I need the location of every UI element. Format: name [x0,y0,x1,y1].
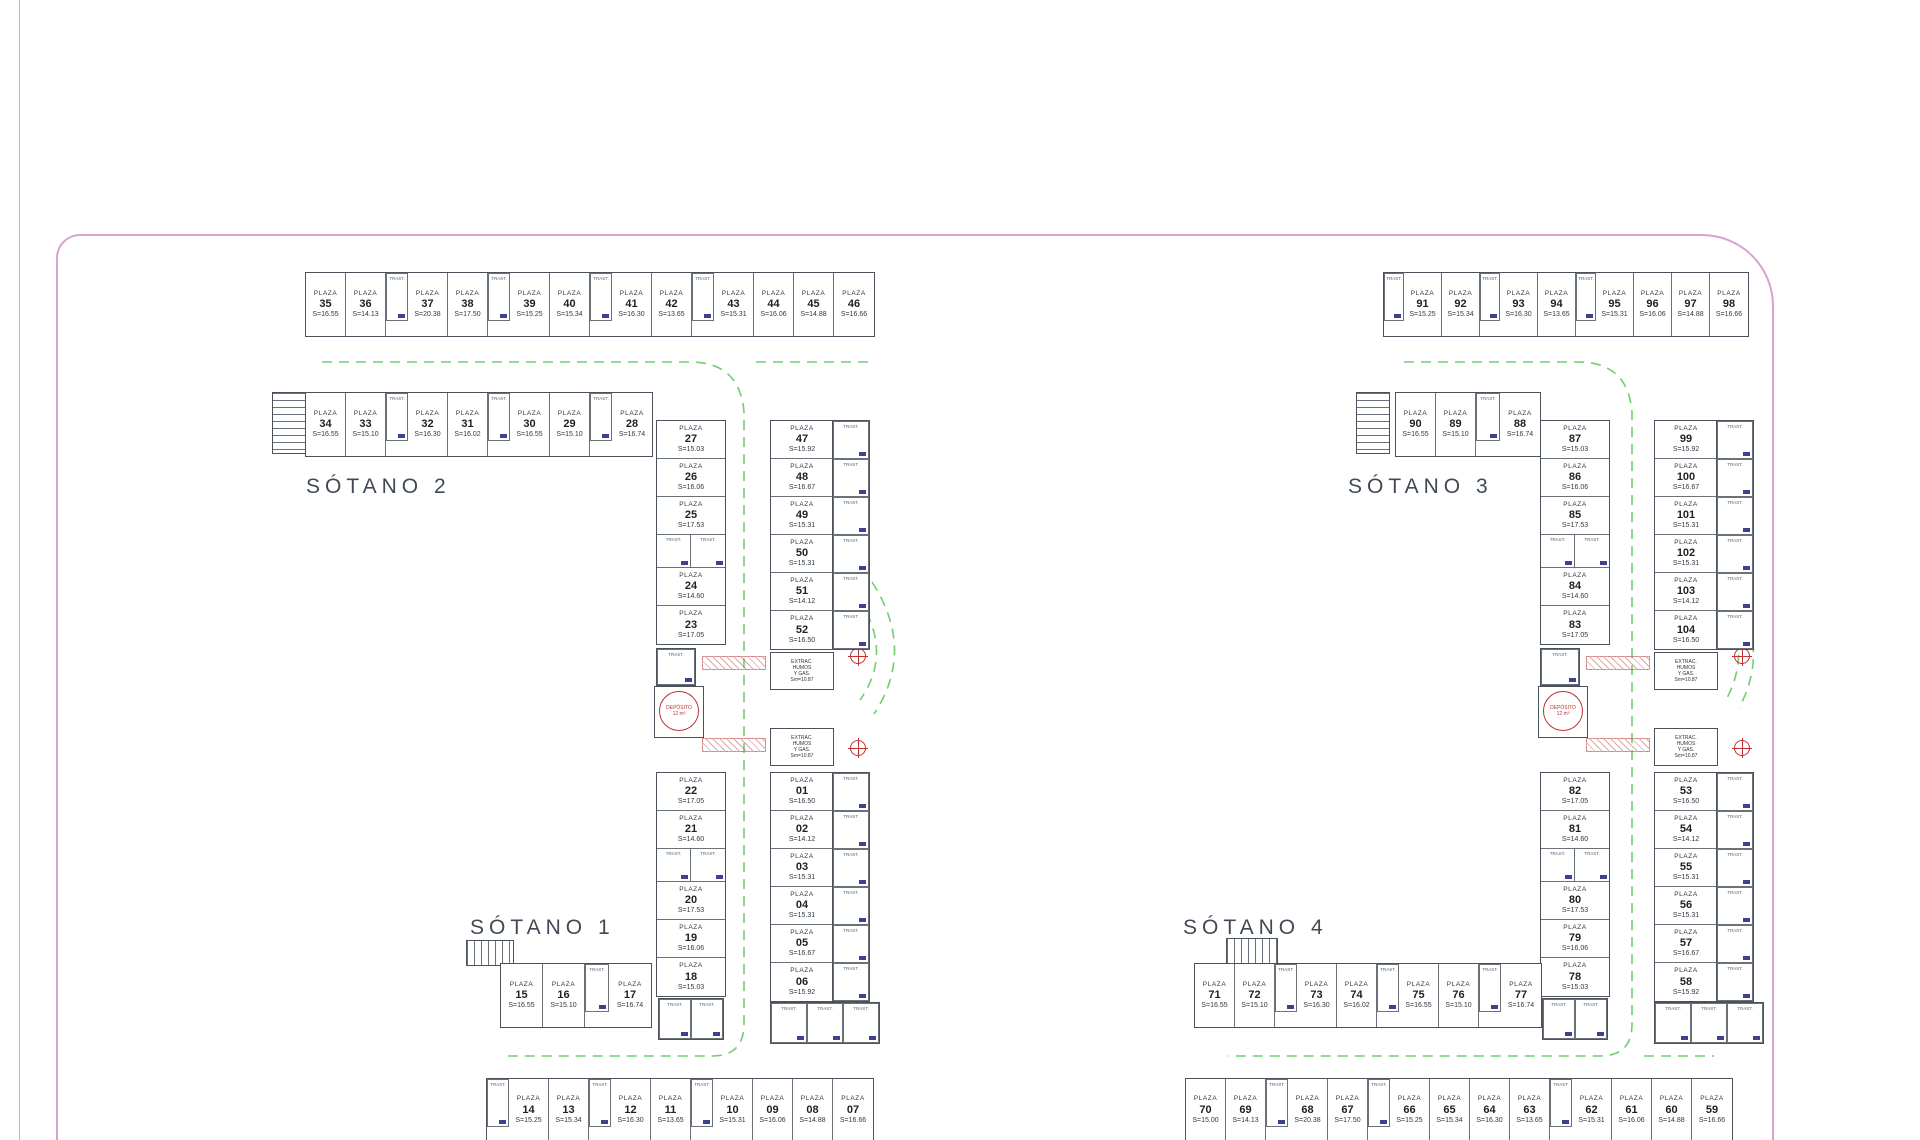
plaza-word: PLAZA [1674,426,1698,433]
trast-box: TRAST. [386,273,408,321]
parking-stall-47: PLAZA47S=15.92 [771,421,833,459]
plaza-number: 65 [1443,1104,1455,1116]
plaza-area: S=15.31 [789,874,815,881]
trast-box: TRAST. [1377,964,1399,1012]
plaza-number: 100 [1677,471,1695,483]
trast-box: TRAST. [1576,273,1596,321]
plaza-number: 63 [1523,1104,1535,1116]
plaza-area: S=16.30 [414,431,440,438]
plaza-word: PLAZA [790,426,814,433]
plaza-number: 15 [515,989,527,1001]
parking-stall-45: PLAZA45S=14.88 [794,273,834,336]
plaza-number: 58 [1680,976,1692,988]
plaza-word: PLAZA [1345,982,1369,989]
plaza-area: S=16.55 [516,431,542,438]
stall-group-s4-row-71-77: PLAZA71S=16.55PLAZA72S=15.10TRAST.PLAZA7… [1194,963,1542,1028]
plaza-number: 34 [319,418,331,430]
stall-group-s4-col-outer: PLAZA53S=16.50PLAZA54S=14.12PLAZA55S=15.… [1654,772,1718,1002]
trast-box: TRAST. [1717,573,1753,611]
parking-stall-21: PLAZA21S=14.60 [657,811,725,849]
plaza-number: 61 [1625,1104,1637,1116]
stall-group-s1-trast-under-inner: TRAST.TRAST. [658,998,724,1040]
plaza-area: S=14.88 [799,1117,825,1124]
sheet-edge-line [19,0,20,1140]
stall-group-s1-trast-under-outer: TRAST.TRAST.TRAST. [770,1002,880,1044]
parking-stall-76: PLAZA76S=15.10 [1439,964,1479,1027]
trast-box: TRAST. [833,773,869,811]
plaza-number: 60 [1665,1104,1677,1116]
plaza-number: 83 [1569,619,1581,631]
trast-box: TRAST. [833,497,869,535]
parking-stall-26: PLAZA26S=16.06 [657,459,725,497]
parking-stall-64: PLAZA64S=16.30 [1470,1079,1510,1140]
plaza-area: S=15.10 [550,1002,576,1009]
parking-stall-39: PLAZA39S=15.25 [510,273,550,336]
trast-box: TRAST. [833,573,869,611]
plaza-area: S=16.66 [1716,311,1742,318]
plaza-word: PLAZA [1674,502,1698,509]
plaza-area: S=15.03 [678,446,704,453]
extrac-line: Sm=10.87 [791,753,814,759]
plaza-word: PLAZA [456,291,480,298]
plaza-area: S=15.34 [1447,311,1473,318]
plaza-number: 80 [1569,894,1581,906]
plaza-number: 92 [1454,298,1466,310]
parking-stall-36: PLAZA36S=14.13 [346,273,386,336]
plaza-area: S=16.50 [789,637,815,644]
parking-stall-19: PLAZA19S=16.06 [657,920,725,958]
trast-pair: TRAST.TRAST. [657,535,725,568]
plaza-area: S=14.60 [1562,836,1588,843]
trast-box: TRAST. [488,393,510,441]
plaza-word: PLAZA [1508,411,1532,418]
parking-stall-69: PLAZA69S=14.13 [1226,1079,1266,1140]
plaza-number: 53 [1680,785,1692,797]
plaza-number: 09 [766,1104,778,1116]
parking-stall-80: PLAZA80S=17.53 [1541,882,1609,920]
trast-box: TRAST. [691,849,725,881]
plaza-word: PLAZA [1563,464,1587,471]
ramp-hatch-left-lower [702,738,766,752]
plaza-number: 26 [685,471,697,483]
plaza-number: 33 [359,418,371,430]
parking-stall-102: PLAZA102S=15.31 [1655,535,1717,573]
plaza-number: 71 [1208,989,1220,1001]
trast-box: TRAST. [1541,649,1579,685]
parking-stall-15: PLAZA15S=16.55 [501,964,543,1027]
parking-stall-78: PLAZA78S=15.03 [1541,958,1609,996]
plaza-word: PLAZA [1243,982,1267,989]
plaza-word: PLAZA [1700,1096,1724,1103]
plaza-word: PLAZA [679,426,703,433]
trast-box: TRAST. [488,273,510,321]
trast-box: TRAST. [1479,964,1501,1012]
plaza-area: S=16.06 [678,945,704,952]
parking-stall-49: PLAZA49S=15.31 [771,497,833,535]
plaza-number: 41 [625,298,637,310]
plaza-area: S=16.55 [1405,1002,1431,1009]
plaza-area: S=15.31 [1673,912,1699,919]
plaza-number: 101 [1677,509,1695,521]
parking-stall-02: PLAZA02S=14.12 [771,811,833,849]
parking-stall-65: PLAZA65S=15.34 [1430,1079,1470,1140]
parking-stall-27: PLAZA27S=15.03 [657,421,725,459]
trast-box: TRAST. [833,459,869,497]
parking-stall-05: PLAZA05S=16.67 [771,925,833,963]
plaza-word: PLAZA [1194,1096,1218,1103]
extrac-line: Sm=10.87 [1675,753,1698,759]
plaza-area: S=14.60 [1562,593,1588,600]
deposito-circle-left: DEPÓSITO 12 m³ [659,691,699,731]
plaza-area: S=16.50 [1673,637,1699,644]
parking-stall-83: PLAZA83S=17.05 [1541,606,1609,644]
ramp-hatch-left-upper [702,656,766,670]
parking-stall-10: PLAZA10S=15.31 [713,1079,753,1140]
plaza-area: S=17.53 [1562,522,1588,529]
trast-box: TRAST. [590,393,612,441]
ramp-hatch-right-upper [1586,656,1650,670]
plaza-word: PLAZA [679,963,703,970]
parking-stall-61: PLAZA61S=16.06 [1612,1079,1652,1140]
parking-stall-66: PLAZA66S=15.25 [1390,1079,1430,1140]
plaza-number: 52 [796,624,808,636]
plaza-number: 21 [685,823,697,835]
plaza-word: PLAZA [1404,411,1428,418]
plaza-number: 02 [796,823,808,835]
parking-stall-88: PLAZA88S=16.74 [1500,393,1540,456]
trast-box: TRAST. [1575,849,1609,881]
plaza-word: PLAZA [679,816,703,823]
red-target-mark [1734,648,1750,664]
parking-stall-51: PLAZA51S=14.12 [771,573,833,611]
plaza-area: S=15.31 [1673,560,1699,567]
trast-box: TRAST. [1717,773,1753,811]
parking-stall-95: PLAZA95S=15.31 [1596,273,1634,336]
stall-group-s4-trast-col: TRAST.TRAST.TRAST.TRAST.TRAST.TRAST. [1716,772,1754,1002]
parking-stall-07: PLAZA07S=16.66 [833,1079,873,1140]
label-sotano-2: SÓTANO 2 [306,475,451,499]
plaza-number: 62 [1585,1104,1597,1116]
plaza-area: S=20.38 [1294,1117,1320,1124]
plaza-word: PLAZA [1563,778,1587,785]
parking-stall-60: PLAZA60S=14.88 [1652,1079,1692,1140]
plaza-number: 42 [665,298,677,310]
parking-stall-31: PLAZA31S=16.02 [448,393,488,456]
trast-pair: TRAST.TRAST. [1541,849,1609,882]
plaza-number: 67 [1341,1104,1353,1116]
parking-stall-100: PLAZA100S=16.67 [1655,459,1717,497]
plaza-word: PLAZA [721,1096,745,1103]
trast-box: TRAST. [1717,963,1753,1001]
plaza-number: 75 [1412,989,1424,1001]
parking-stall-50: PLAZA50S=15.31 [771,535,833,573]
plaza-number: 07 [847,1104,859,1116]
plaza-number: 81 [1569,823,1581,835]
parking-stall-91: PLAZA91S=15.25 [1404,273,1442,336]
trast-box: TRAST. [1480,273,1500,321]
plaza-number: 87 [1569,433,1581,445]
plaza-area: S=15.03 [678,984,704,991]
plaza-word: PLAZA [1674,540,1698,547]
parking-stall-16: PLAZA16S=15.10 [543,964,585,1027]
parking-stall-93: PLAZA93S=16.30 [1500,273,1538,336]
parking-stall-17: PLAZA17S=16.74 [609,964,651,1027]
trast-box: TRAST. [833,535,869,573]
extraction-shaft-left-upper: EXTRAC. HUMOS Y GAS. Sm=10.87 [770,652,834,690]
plaza-area: S=15.31 [789,522,815,529]
parking-stall-63: PLAZA63S=13.65 [1510,1079,1550,1140]
plaza-number: 10 [726,1104,738,1116]
plaza-number: 78 [1569,971,1581,983]
plaza-area: S=13.65 [657,1117,683,1124]
parking-stall-34: PLAZA34S=16.55 [306,393,346,456]
plaza-number: 38 [461,298,473,310]
parking-stall-59: PLAZA59S=16.66 [1692,1079,1732,1140]
plaza-area: S=15.03 [1562,446,1588,453]
stairs-right-upper [1356,392,1390,454]
stall-group-s3-second-row: PLAZA90S=16.55PLAZA89S=15.10TRAST.PLAZA8… [1395,392,1541,457]
plaza-area: S=16.02 [454,431,480,438]
plaza-word: PLAZA [1411,291,1435,298]
stall-group-s4-trast-under-inner: TRAST.TRAST. [1542,998,1608,1040]
parking-stall-18: PLAZA18S=15.03 [657,958,725,996]
parking-stall-48: PLAZA48S=16.67 [771,459,833,497]
trast-box: TRAST. [1541,849,1575,881]
plaza-word: PLAZA [1620,1096,1644,1103]
plaza-area: S=15.31 [1673,522,1699,529]
plaza-word: PLAZA [842,291,866,298]
parking-stall-97: PLAZA97S=14.88 [1672,273,1710,336]
plaza-number: 76 [1452,989,1464,1001]
stall-group-s1-col-inner: PLAZA22S=17.05PLAZA21S=14.60TRAST.TRAST.… [656,772,726,997]
parking-stall-72: PLAZA72S=15.10 [1235,964,1275,1027]
plaza-number: 01 [796,785,808,797]
plaza-area: S=14.60 [678,836,704,843]
parking-stall-41: PLAZA41S=16.30 [612,273,652,336]
plaza-area: S=14.88 [1658,1117,1684,1124]
plaza-area: S=16.67 [789,484,815,491]
plaza-word: PLAZA [790,930,814,937]
deposito-volume: 12 m³ [673,711,686,717]
plaza-number: 72 [1248,989,1260,1001]
parking-stall-68: PLAZA68S=20.38 [1288,1079,1328,1140]
plaza-number: 103 [1677,585,1695,597]
parking-stall-28: PLAZA28S=16.74 [612,393,652,456]
plaza-area: S=16.55 [1402,431,1428,438]
plaza-number: 49 [796,509,808,521]
plaza-number: 55 [1680,861,1692,873]
plaza-area: S=16.06 [1639,311,1665,318]
plaza-number: 43 [727,298,739,310]
plaza-area: S=16.30 [617,1117,643,1124]
plaza-number: 12 [624,1104,636,1116]
plaza-word: PLAZA [1203,982,1227,989]
plaza-word: PLAZA [619,1096,643,1103]
plaza-area: S=17.50 [1334,1117,1360,1124]
trast-box: TRAST. [691,535,725,567]
parking-stall-84: PLAZA84S=14.60 [1541,568,1609,606]
plaza-area: S=16.74 [617,1002,643,1009]
extrac-line: Sm=10.87 [1675,677,1698,683]
plaza-area: S=13.65 [1543,311,1569,318]
parking-stall-75: PLAZA75S=16.55 [1399,964,1439,1027]
plaza-word: PLAZA [1509,982,1533,989]
plaza-number: 59 [1706,1104,1718,1116]
plaza-number: 97 [1684,298,1696,310]
trast-box: TRAST. [657,849,691,881]
plaza-word: PLAZA [1234,1096,1258,1103]
stall-group-s2-second-row: PLAZA34S=16.55PLAZA33S=15.10TRAST.PLAZA3… [305,392,653,457]
plaza-area: S=15.92 [789,446,815,453]
plaza-area: S=15.31 [789,912,815,919]
trast-box: TRAST. [1368,1079,1390,1127]
plaza-number: 14 [522,1104,534,1116]
red-target-mark [1734,740,1750,756]
stall-group-s2-col-inner: PLAZA27S=15.03PLAZA26S=16.06PLAZA25S=17.… [656,420,726,645]
plaza-number: 89 [1449,418,1461,430]
plaza-word: PLAZA [314,411,338,418]
parking-stall-82: PLAZA82S=17.05 [1541,773,1609,811]
plaza-number: 19 [685,932,697,944]
parking-stall-74: PLAZA74S=16.02 [1337,964,1377,1027]
plaza-number: 77 [1515,989,1527,1001]
plaza-number: 36 [359,298,371,310]
plaza-word: PLAZA [761,1096,785,1103]
plaza-area: S=13.65 [658,311,684,318]
plaza-word: PLAZA [1674,930,1698,937]
plaza-word: PLAZA [679,925,703,932]
plaza-word: PLAZA [416,411,440,418]
plaza-word: PLAZA [1447,982,1471,989]
stall-group-s4-col-inner: PLAZA82S=17.05PLAZA81S=14.60TRAST.TRAST.… [1540,772,1610,997]
parking-stall-32: PLAZA32S=16.30 [408,393,448,456]
plaza-area: S=16.55 [312,311,338,318]
trast-box: TRAST. [1717,849,1753,887]
plaza-word: PLAZA [1563,426,1587,433]
plaza-number: 95 [1608,298,1620,310]
plaza-word: PLAZA [1679,291,1703,298]
parking-stall-70: PLAZA70S=15.00 [1186,1079,1226,1140]
parking-stall-67: PLAZA67S=17.50 [1328,1079,1368,1140]
stall-group-s3-col-outer: PLAZA99S=15.92PLAZA100S=16.67PLAZA101S=1… [1654,420,1718,650]
plaza-number: 88 [1514,418,1526,430]
plaza-word: PLAZA [1674,778,1698,785]
plaza-area: S=15.92 [789,989,815,996]
extraction-shaft-left-lower: EXTRAC. HUMOS Y GAS. Sm=10.87 [770,728,834,766]
plaza-number: 28 [626,418,638,430]
plaza-word: PLAZA [1674,616,1698,623]
plaza-word: PLAZA [790,502,814,509]
plaza-word: PLAZA [456,411,480,418]
plaza-number: 31 [461,418,473,430]
parking-stall-53: PLAZA53S=16.50 [1655,773,1717,811]
trast-box: TRAST. [590,273,612,321]
parking-stall-30: PLAZA30S=16.55 [510,393,550,456]
plaza-word: PLAZA [1674,854,1698,861]
parking-stall-62: PLAZA62S=15.31 [1572,1079,1612,1140]
parking-stall-12: PLAZA12S=16.30 [611,1079,651,1140]
plaza-word: PLAZA [1478,1096,1502,1103]
stall-group-s3-trast-mid: TRAST. [1540,648,1580,686]
plaza-word: PLAZA [790,816,814,823]
plaza-word: PLAZA [1407,982,1431,989]
plaza-area: S=15.92 [1673,446,1699,453]
plaza-area: S=17.53 [1562,907,1588,914]
plaza-number: 68 [1301,1104,1313,1116]
plaza-number: 35 [319,298,331,310]
plaza-word: PLAZA [802,291,826,298]
plaza-area: S=15.31 [789,560,815,567]
plaza-word: PLAZA [354,291,378,298]
trast-box: TRAST. [585,964,609,1012]
plaza-area: S=16.30 [1476,1117,1502,1124]
plaza-area: S=16.30 [1303,1002,1329,1009]
plaza-area: S=17.53 [678,907,704,914]
plaza-word: PLAZA [801,1096,825,1103]
plaza-area: S=15.10 [1442,431,1468,438]
plaza-number: 96 [1646,298,1658,310]
parking-stall-81: PLAZA81S=14.60 [1541,811,1609,849]
stall-group-s1-trast-col: TRAST.TRAST.TRAST.TRAST.TRAST.TRAST. [832,772,870,1002]
plaza-number: 18 [685,971,697,983]
plaza-number: 86 [1569,471,1581,483]
plaza-number: 17 [624,989,636,1001]
parking-stall-22: PLAZA22S=17.05 [657,773,725,811]
plaza-word: PLAZA [510,982,534,989]
plaza-word: PLAZA [790,578,814,585]
parking-stall-71: PLAZA71S=16.55 [1195,964,1235,1027]
plaza-number: 64 [1483,1104,1495,1116]
plaza-area: S=14.13 [1232,1117,1258,1124]
plaza-area: S=16.74 [619,431,645,438]
parking-stall-11: PLAZA11S=13.65 [651,1079,691,1140]
trast-box: TRAST. [1717,887,1753,925]
trast-box: TRAST. [386,393,408,441]
plaza-area: S=15.25 [515,1117,541,1124]
plaza-area: S=16.55 [508,1002,534,1009]
plaza-word: PLAZA [679,464,703,471]
plaza-number: 30 [523,418,535,430]
stall-group-s3-col-inner: PLAZA87S=15.03PLAZA86S=16.06PLAZA85S=17.… [1540,420,1610,645]
trast-box: TRAST. [1541,535,1575,567]
plaza-area: S=16.66 [841,311,867,318]
parking-stall-14: PLAZA14S=15.25 [509,1079,549,1140]
plaza-word: PLAZA [1674,892,1698,899]
plaza-number: 23 [685,619,697,631]
plaza-area: S=16.30 [618,311,644,318]
plaza-area: S=16.30 [1505,311,1531,318]
plaza-area: S=16.06 [1618,1117,1644,1124]
plaza-word: PLAZA [1545,291,1569,298]
parking-stall-94: PLAZA94S=13.65 [1538,273,1576,336]
trast-box: TRAST. [833,811,869,849]
label-sotano-4: SÓTANO 4 [1183,916,1328,940]
plaza-word: PLAZA [1449,291,1473,298]
plaza-area: S=16.06 [678,484,704,491]
plaza-word: PLAZA [722,291,746,298]
parking-stall-101: PLAZA101S=15.31 [1655,497,1717,535]
plaza-word: PLAZA [552,982,576,989]
plaza-number: 98 [1723,298,1735,310]
trast-box: TRAST. [1717,497,1753,535]
parking-stall-103: PLAZA103S=14.12 [1655,573,1717,611]
plaza-area: S=15.34 [555,1117,581,1124]
plaza-area: S=16.06 [1562,945,1588,952]
parking-stall-13: PLAZA13S=15.34 [549,1079,589,1140]
plaza-word: PLAZA [1444,411,1468,418]
trast-box: TRAST. [1727,1003,1763,1043]
plaza-area: S=15.10 [1445,1002,1471,1009]
